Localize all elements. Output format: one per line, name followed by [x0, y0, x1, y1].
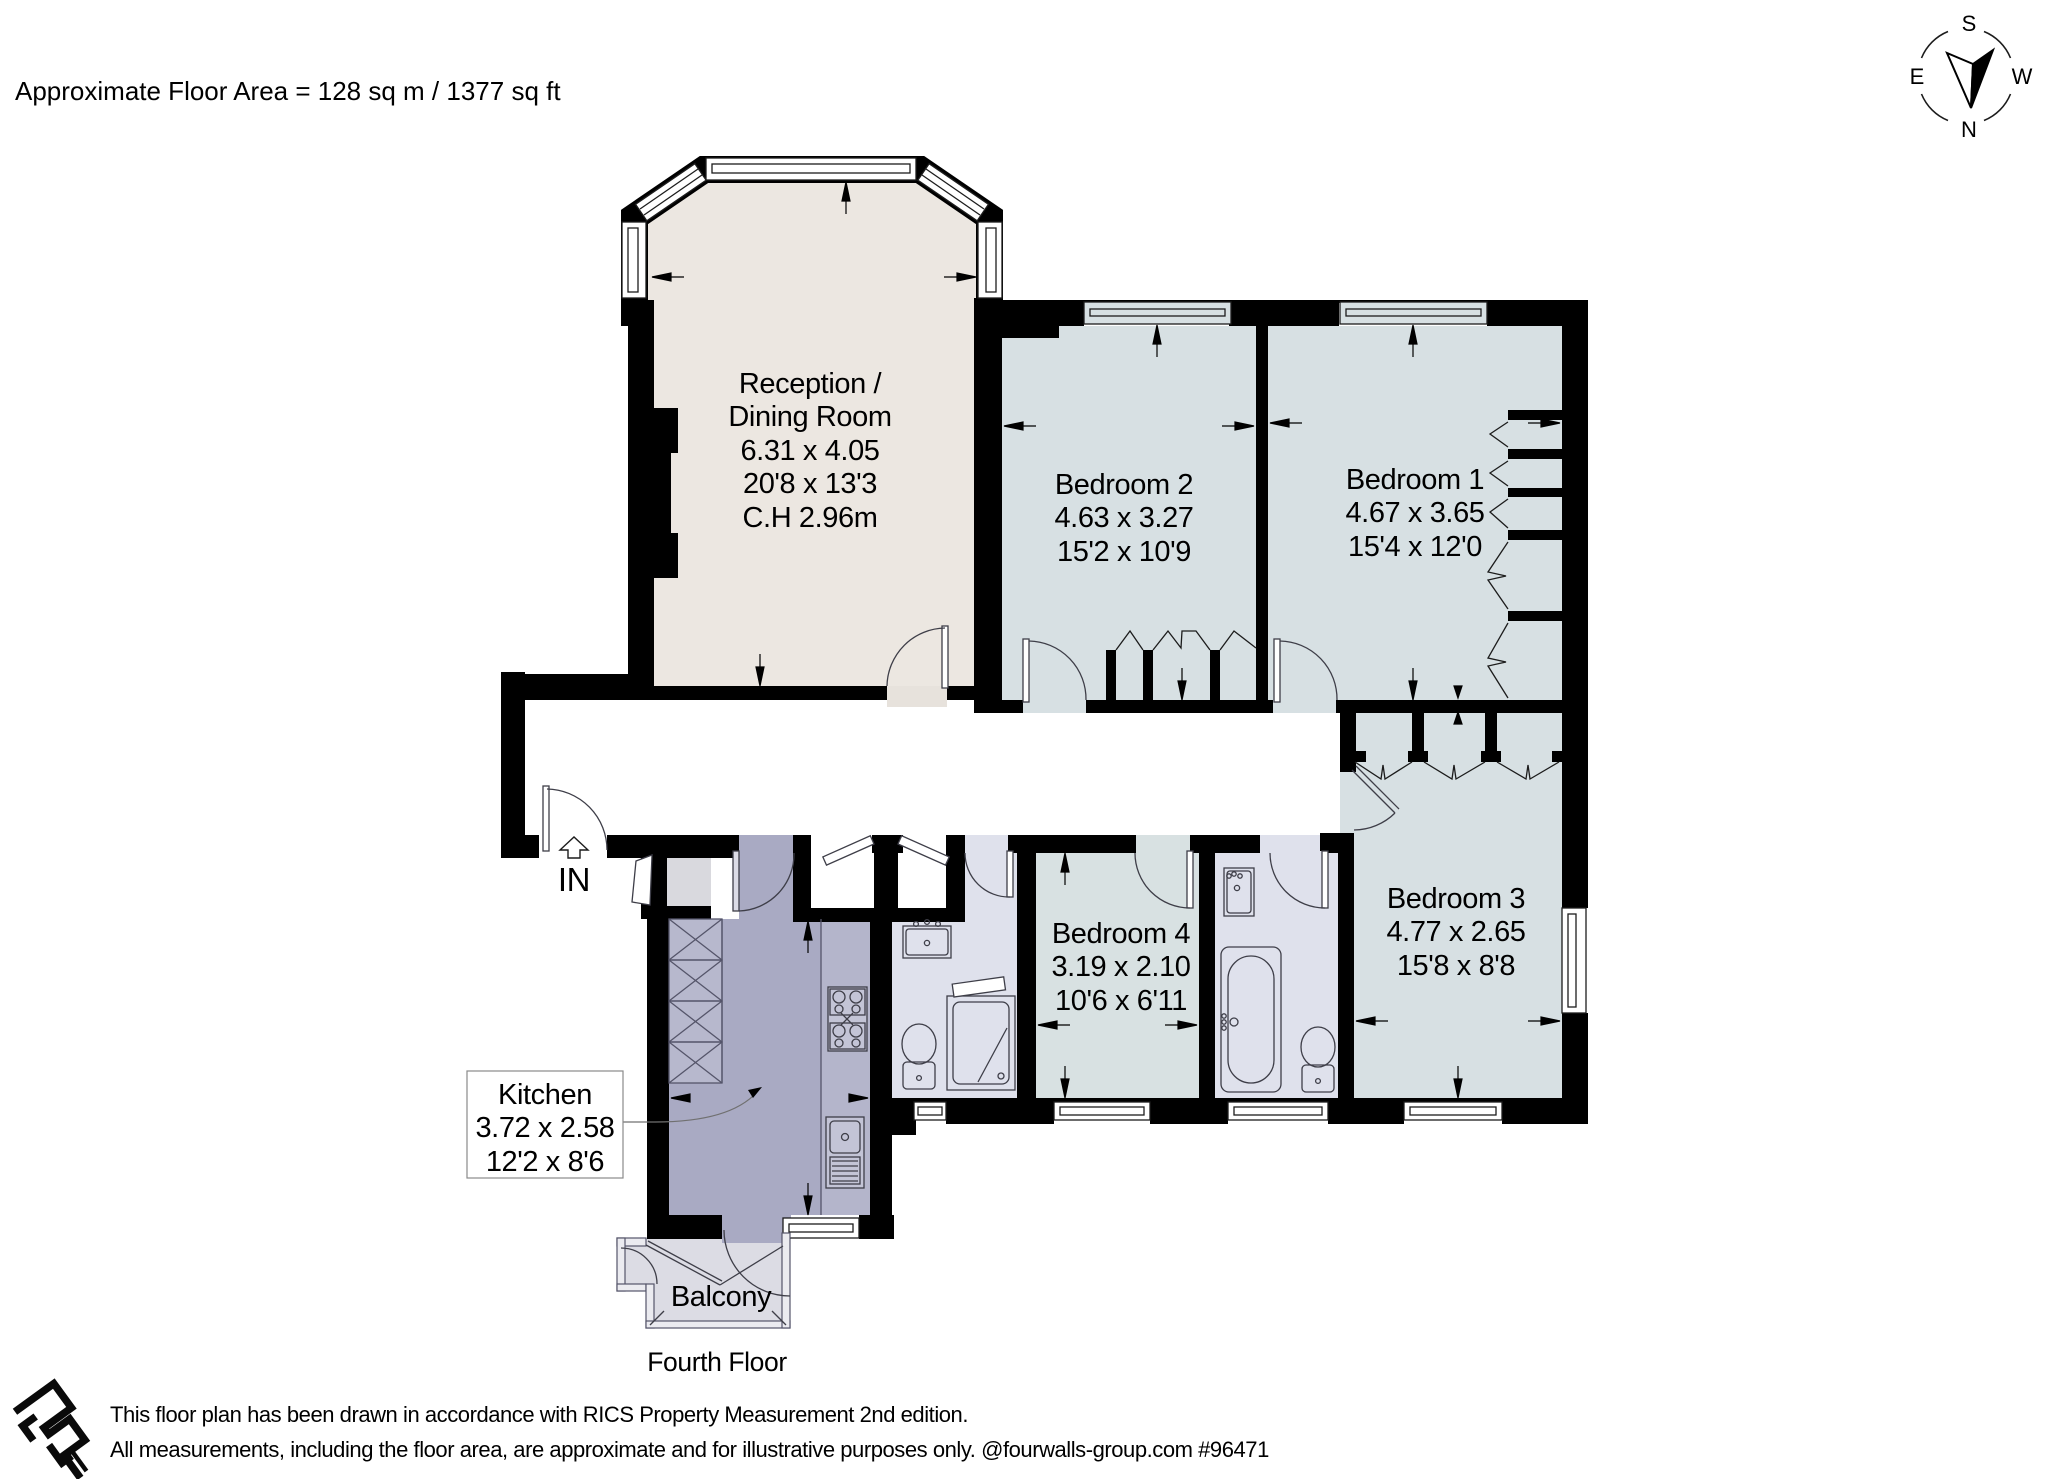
svg-text:E: E [1910, 64, 1925, 89]
svg-text:Bedroom 3: Bedroom 3 [1387, 883, 1525, 915]
svg-text:Bedroom 2: Bedroom 2 [1055, 469, 1193, 501]
svg-text:10'6 x 6'11: 10'6 x 6'11 [1055, 985, 1187, 1017]
svg-text:4.63 x 3.27: 4.63 x 3.27 [1054, 502, 1193, 534]
svg-text:Approximate Floor Area = 128 s: Approximate Floor Area = 128 sq m / 1377… [15, 76, 561, 106]
svg-text:Reception /: Reception / [739, 368, 883, 400]
svg-text:IN: IN [558, 861, 590, 898]
svg-text:15'2 x 10'9: 15'2 x 10'9 [1057, 536, 1191, 568]
svg-text:Bedroom 1: Bedroom 1 [1346, 464, 1484, 496]
svg-text:Balcony: Balcony [671, 1281, 772, 1313]
svg-text:C.H 2.96m: C.H 2.96m [743, 502, 878, 534]
svg-text:This floor plan has been drawn: This floor plan has been drawn in accord… [110, 1402, 968, 1427]
svg-text:Bedroom 4: Bedroom 4 [1052, 918, 1191, 950]
svg-text:15'4 x 12'0: 15'4 x 12'0 [1348, 531, 1482, 563]
svg-text:3.72 x 2.58: 3.72 x 2.58 [475, 1112, 614, 1144]
svg-text:3.19 x 2.10: 3.19 x 2.10 [1051, 951, 1190, 983]
svg-text:20'8 x 13'3: 20'8 x 13'3 [743, 468, 877, 500]
svg-text:15'8 x 8'8: 15'8 x 8'8 [1397, 950, 1515, 982]
svg-text:Kitchen: Kitchen [498, 1079, 592, 1111]
svg-text:4.77 x 2.65: 4.77 x 2.65 [1386, 916, 1525, 948]
svg-text:S: S [1962, 11, 1977, 36]
svg-text:W: W [2012, 64, 2033, 89]
svg-text:Fourth Floor: Fourth Floor [647, 1347, 787, 1377]
svg-text:6.31 x 4.05: 6.31 x 4.05 [740, 435, 879, 467]
svg-text:4.67 x 3.65: 4.67 x 3.65 [1345, 497, 1484, 529]
svg-text:12'2 x 8'6: 12'2 x 8'6 [486, 1146, 604, 1178]
svg-text:Dining Room: Dining Room [728, 401, 891, 433]
svg-text:All measurements, including th: All measurements, including the floor ar… [110, 1437, 1269, 1462]
svg-text:N: N [1961, 117, 1977, 142]
